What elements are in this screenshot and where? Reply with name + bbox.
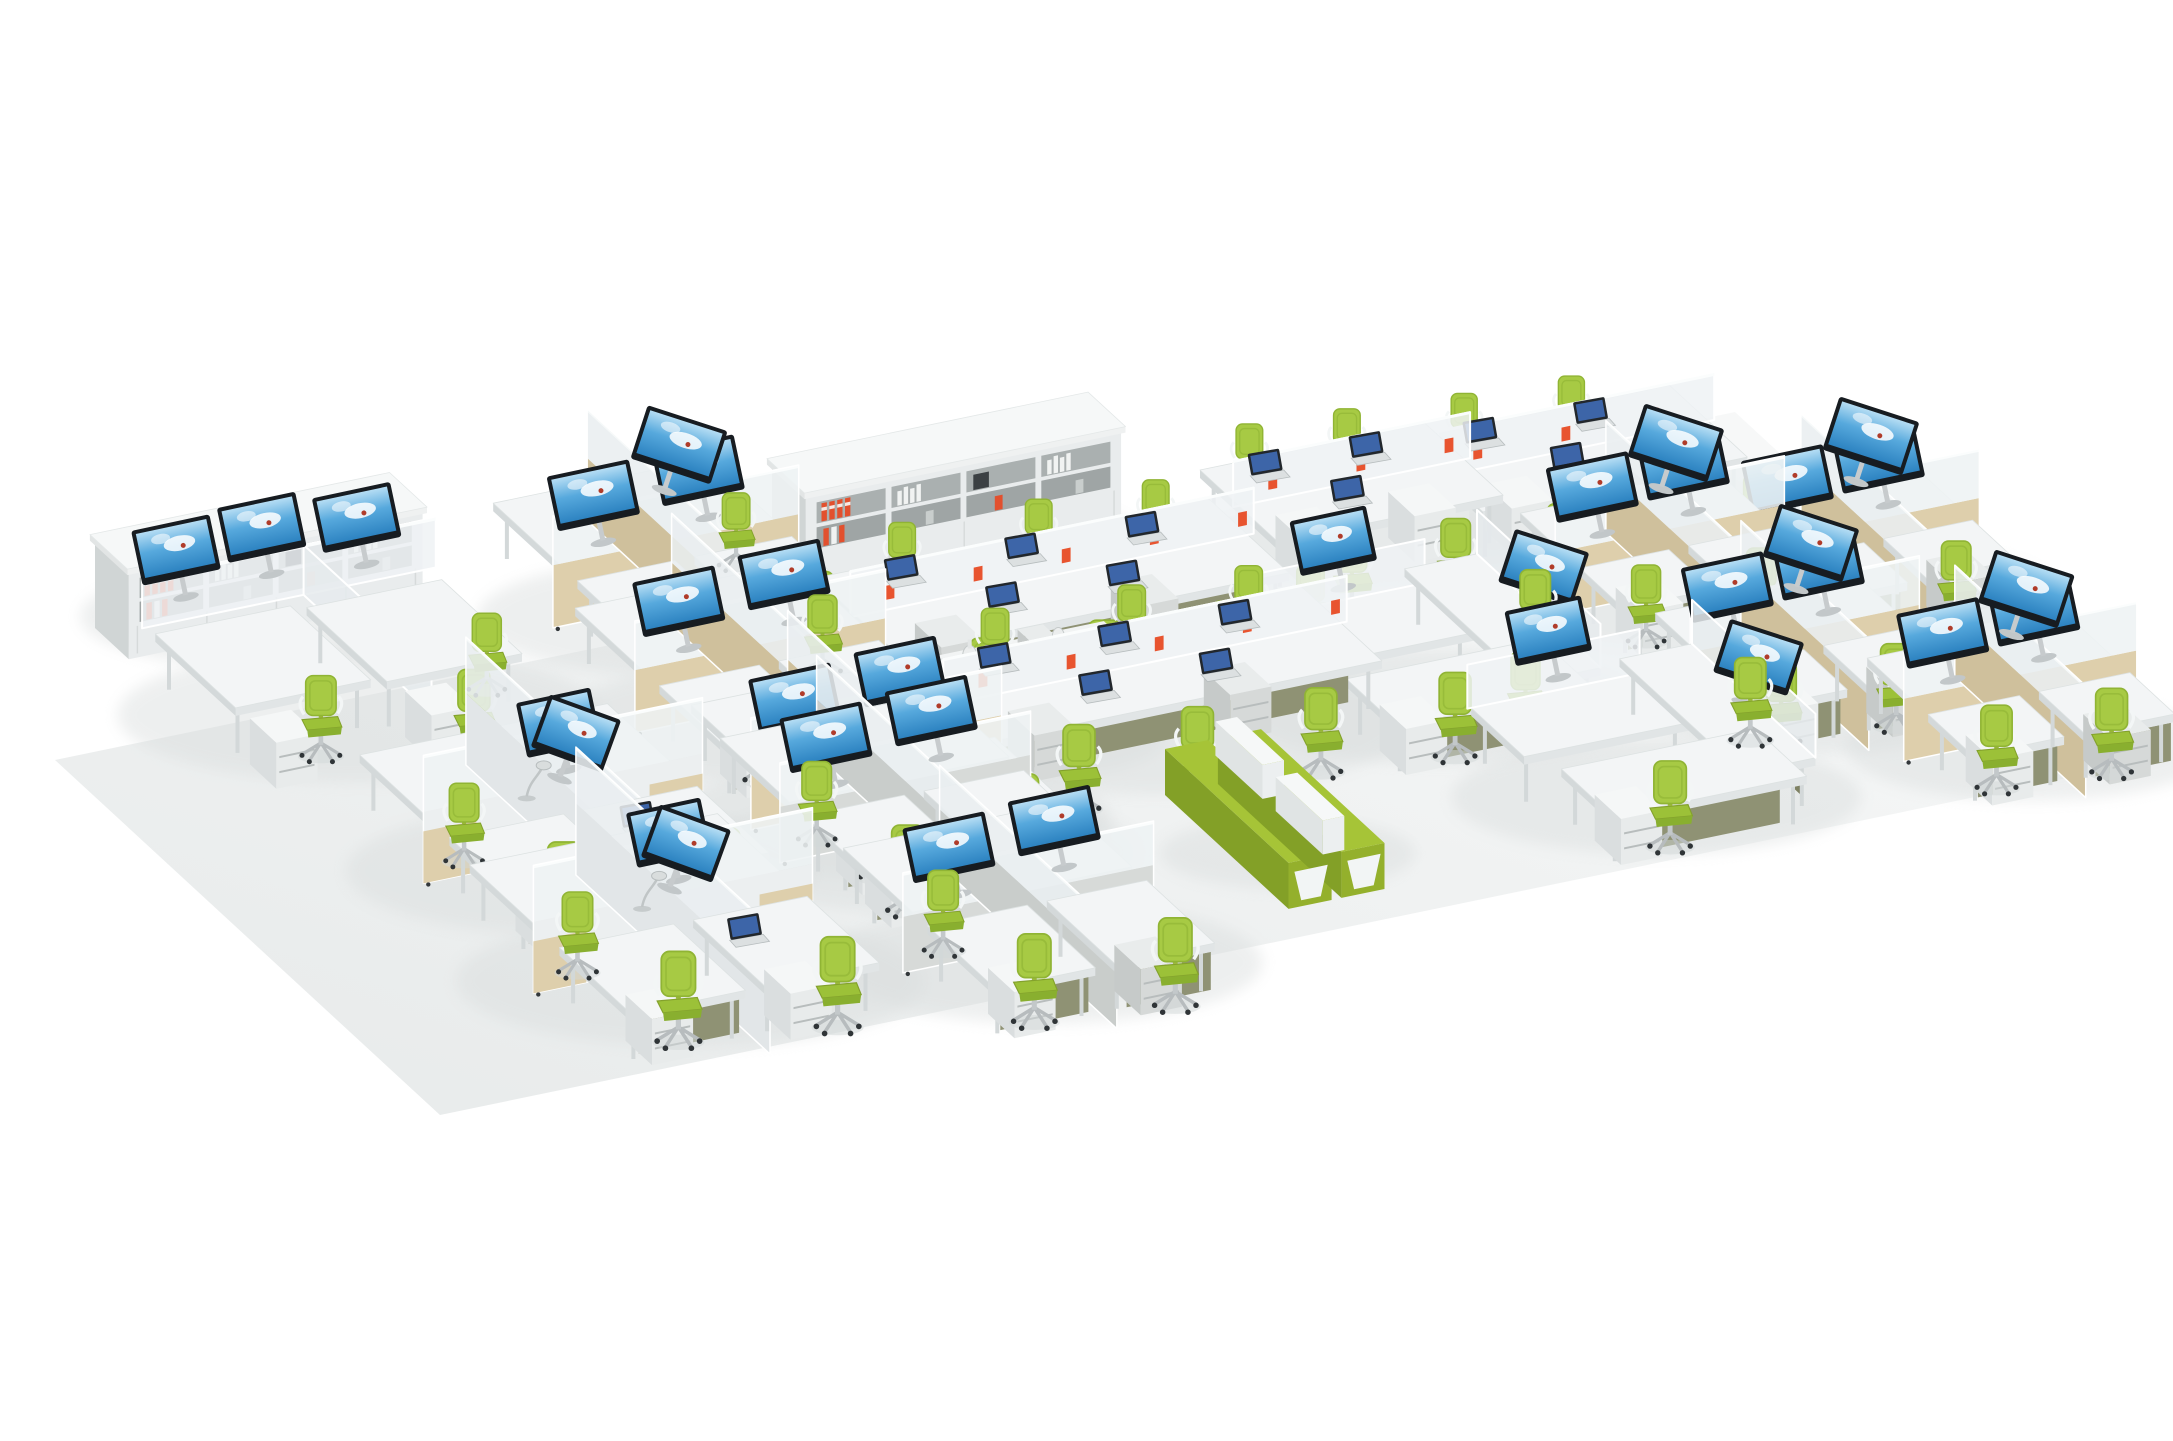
- office-floorplan-render: [0, 0, 2173, 1441]
- office-render-stage: [0, 0, 2173, 1441]
- page: { "meta": { "title": "Open plan office f…: [0, 0, 2173, 1441]
